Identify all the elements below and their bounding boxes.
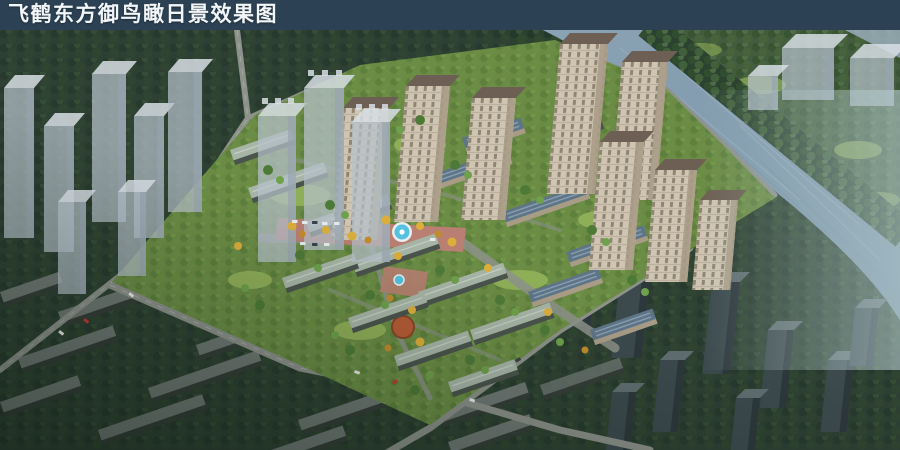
atmosphere-overlays	[0, 30, 900, 450]
page-title: 飞鹤东方御鸟瞰日景效果图	[0, 0, 278, 30]
rendering-page: 飞鹤东方御鸟瞰日景效果图	[0, 0, 900, 450]
title-bar: 飞鹤东方御鸟瞰日景效果图	[0, 0, 900, 30]
aerial-rendering	[0, 30, 900, 450]
